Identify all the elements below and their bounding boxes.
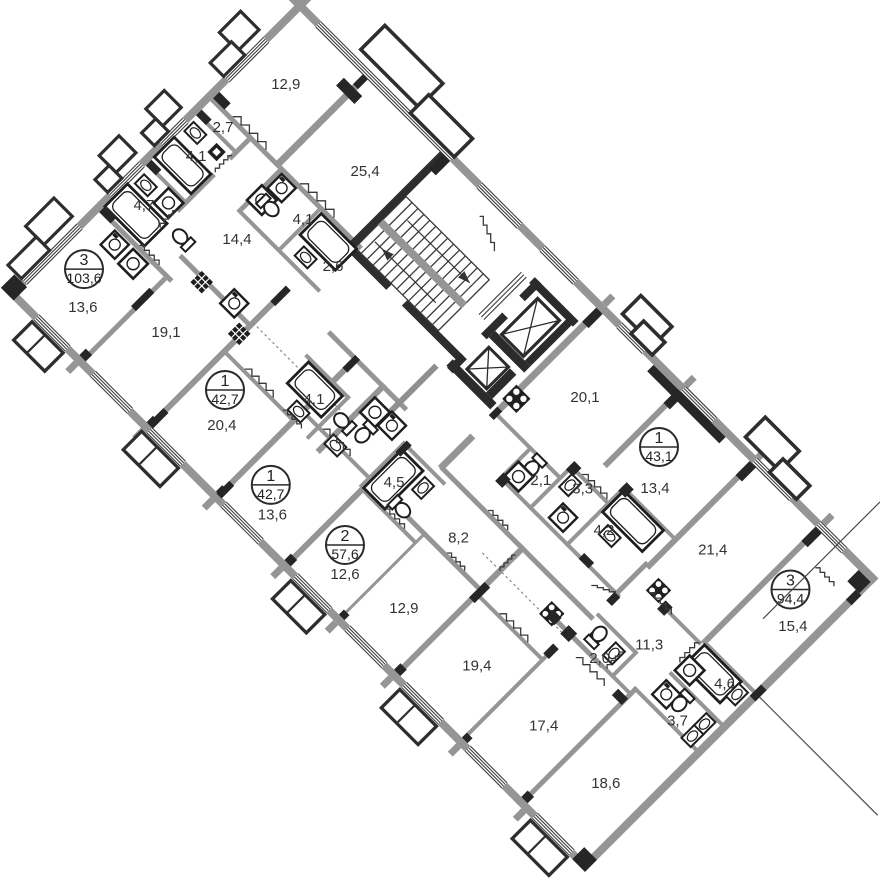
svg-text:4,5: 4,5 [384, 474, 405, 491]
svg-text:18,6: 18,6 [591, 775, 620, 792]
svg-text:20,1: 20,1 [570, 389, 599, 406]
svg-text:57,6: 57,6 [331, 546, 358, 562]
svg-text:42,7: 42,7 [211, 391, 238, 407]
svg-text:1: 1 [266, 468, 275, 485]
svg-text:1: 1 [221, 373, 230, 390]
svg-text:14,4: 14,4 [222, 231, 251, 248]
svg-text:103,6: 103,6 [66, 270, 101, 286]
svg-text:19,1: 19,1 [151, 324, 180, 341]
svg-text:4,1: 4,1 [304, 391, 325, 408]
svg-text:19,4: 19,4 [462, 657, 491, 674]
svg-text:4,6: 4,6 [714, 676, 735, 693]
svg-text:3,7: 3,7 [667, 713, 688, 730]
svg-text:11,3: 11,3 [635, 637, 663, 654]
svg-text:8,2: 8,2 [448, 530, 469, 547]
svg-text:43,1: 43,1 [645, 448, 672, 464]
svg-text:3: 3 [786, 573, 795, 590]
svg-text:94,4: 94,4 [777, 591, 804, 607]
svg-text:2,7: 2,7 [213, 119, 234, 136]
svg-text:15,4: 15,4 [778, 618, 807, 635]
svg-text:21,4: 21,4 [698, 542, 727, 559]
svg-text:12,9: 12,9 [271, 76, 300, 93]
svg-text:1: 1 [655, 430, 664, 447]
svg-text:4,1: 4,1 [186, 148, 207, 165]
svg-text:2: 2 [341, 528, 350, 545]
svg-text:2,1: 2,1 [530, 472, 551, 489]
svg-text:12,6: 12,6 [330, 566, 359, 583]
svg-text:12,9: 12,9 [389, 600, 418, 617]
svg-text:13,4: 13,4 [640, 480, 669, 497]
svg-text:42,7: 42,7 [257, 486, 284, 502]
svg-text:3: 3 [80, 252, 89, 269]
svg-text:3,3: 3,3 [572, 481, 593, 498]
svg-text:4,2: 4,2 [593, 522, 614, 539]
svg-text:2,6: 2,6 [323, 258, 344, 275]
svg-text:13,6: 13,6 [68, 299, 97, 316]
svg-text:4,1: 4,1 [293, 211, 314, 228]
svg-text:17,4: 17,4 [529, 718, 558, 735]
svg-text:2,0: 2,0 [589, 650, 610, 667]
svg-text:20,4: 20,4 [207, 417, 236, 434]
svg-text:13,6: 13,6 [258, 506, 287, 523]
svg-text:25,4: 25,4 [350, 163, 379, 180]
svg-text:4,7: 4,7 [133, 197, 154, 214]
